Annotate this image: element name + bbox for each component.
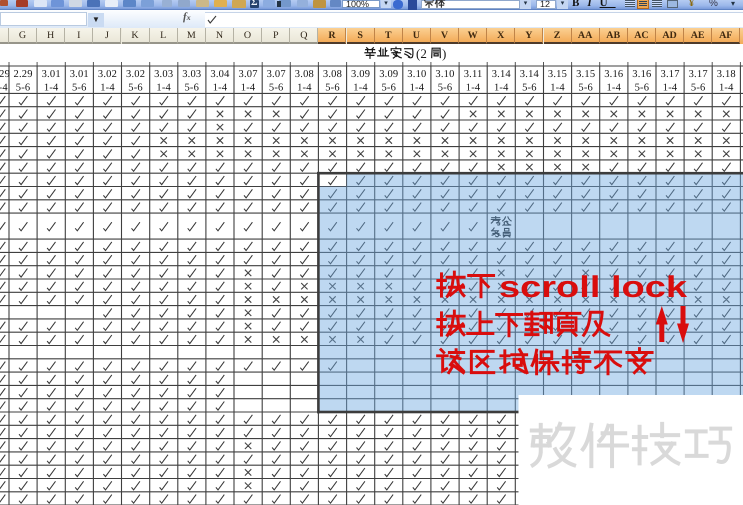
svg-text:3.08: 3.08 xyxy=(323,69,342,80)
svg-text:1-4: 1-4 xyxy=(353,83,368,94)
svg-text:1-4: 1-4 xyxy=(156,83,171,94)
svg-text:1-4: 1-4 xyxy=(606,83,621,94)
svg-text:3.02: 3.02 xyxy=(126,69,145,80)
svg-text:3.14: 3.14 xyxy=(492,69,512,80)
svg-text:5-6: 5-6 xyxy=(381,83,396,94)
svg-text:1-4: 1-4 xyxy=(719,83,734,94)
svg-text:1-4: 1-4 xyxy=(0,83,8,94)
svg-text:): ) xyxy=(442,46,446,61)
svg-text:3.03: 3.03 xyxy=(154,69,173,80)
svg-text:5-6: 5-6 xyxy=(128,83,143,94)
svg-text:2.29: 2.29 xyxy=(0,69,10,80)
svg-text:3.03: 3.03 xyxy=(182,69,201,80)
svg-text:3.10: 3.10 xyxy=(435,69,454,80)
svg-text:5-6: 5-6 xyxy=(691,83,706,94)
svg-text:1-4: 1-4 xyxy=(410,83,425,94)
svg-text:1-4: 1-4 xyxy=(241,83,256,94)
svg-text:5-6: 5-6 xyxy=(635,83,650,94)
svg-text:2.29: 2.29 xyxy=(14,69,33,80)
svg-text:5-6: 5-6 xyxy=(438,83,453,94)
svg-text:3.15: 3.15 xyxy=(548,69,567,80)
svg-text:3.10: 3.10 xyxy=(407,69,426,80)
svg-text:1-4: 1-4 xyxy=(494,83,509,94)
svg-text:1-4: 1-4 xyxy=(297,83,312,94)
svg-text:3.01: 3.01 xyxy=(70,69,89,80)
svg-text:5-6: 5-6 xyxy=(16,83,31,94)
svg-text:3.15: 3.15 xyxy=(576,69,595,80)
svg-text:3.09: 3.09 xyxy=(379,69,398,80)
svg-text:3.07: 3.07 xyxy=(239,69,258,80)
svg-text:3.16: 3.16 xyxy=(632,69,651,80)
svg-text:3.04: 3.04 xyxy=(210,69,230,80)
svg-text:5-6: 5-6 xyxy=(522,83,537,94)
svg-text:3.17: 3.17 xyxy=(689,69,708,80)
svg-text:3.08: 3.08 xyxy=(295,69,314,80)
svg-text:1-4: 1-4 xyxy=(663,83,678,94)
svg-text:5-6: 5-6 xyxy=(184,83,199,94)
svg-text:scroll lock: scroll lock xyxy=(499,271,687,304)
svg-text:1-4: 1-4 xyxy=(44,83,59,94)
svg-text:1-4: 1-4 xyxy=(550,83,565,94)
svg-text:5-6: 5-6 xyxy=(269,83,284,94)
svg-text:3.02: 3.02 xyxy=(98,69,117,80)
svg-text:5-6: 5-6 xyxy=(578,83,593,94)
svg-text:3.01: 3.01 xyxy=(42,69,61,80)
svg-text:(2: (2 xyxy=(416,46,427,61)
svg-text:5-6: 5-6 xyxy=(325,83,340,94)
svg-text:1-4: 1-4 xyxy=(466,83,481,94)
svg-text:3.17: 3.17 xyxy=(661,69,680,80)
svg-text:3.14: 3.14 xyxy=(520,69,540,80)
svg-text:1-4: 1-4 xyxy=(100,83,115,94)
svg-text:3.11: 3.11 xyxy=(464,69,483,80)
svg-text:3.07: 3.07 xyxy=(267,69,286,80)
svg-text:1-4: 1-4 xyxy=(213,83,228,94)
svg-text:3.16: 3.16 xyxy=(604,69,623,80)
svg-text:3.18: 3.18 xyxy=(717,69,736,80)
svg-text:5-6: 5-6 xyxy=(72,83,87,94)
svg-text:3.09: 3.09 xyxy=(351,69,370,80)
